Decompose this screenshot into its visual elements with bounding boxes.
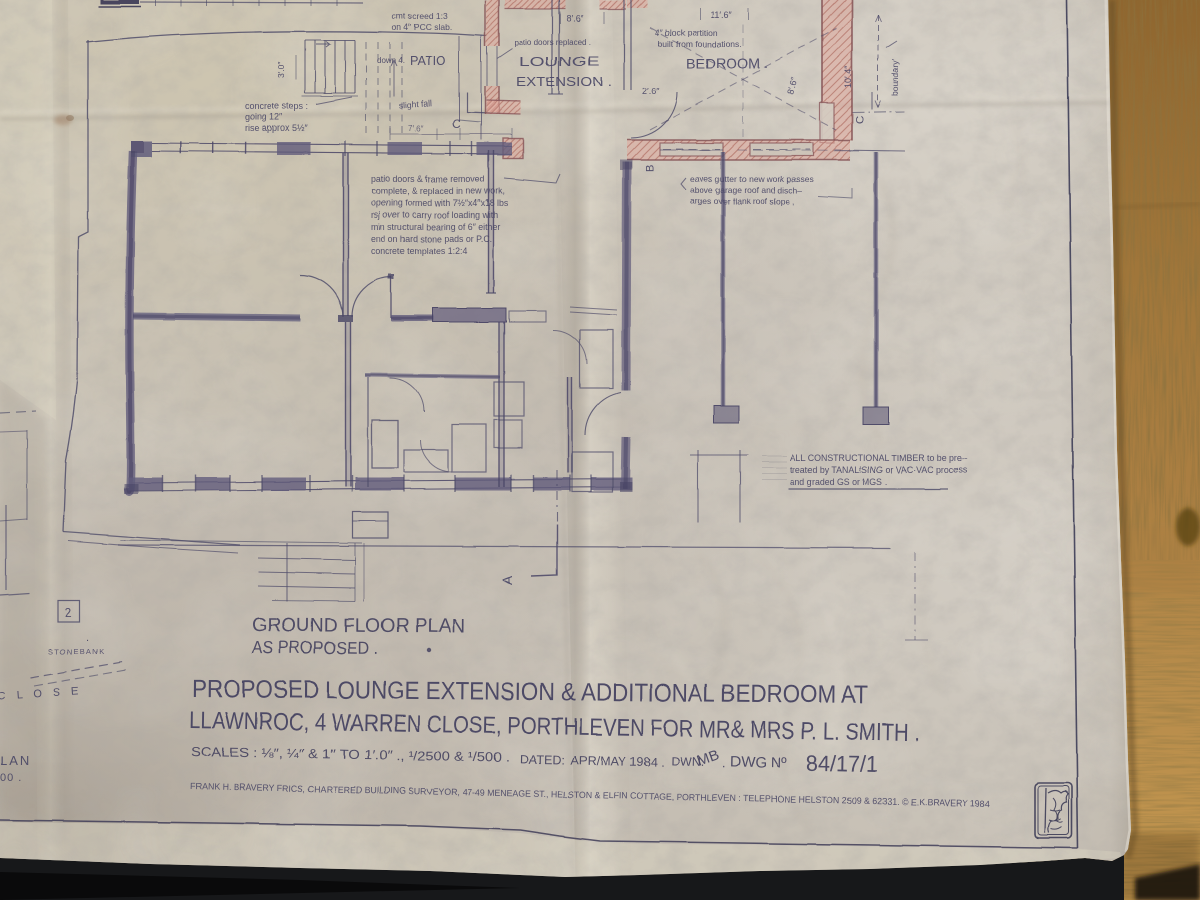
svg-text:00 .: 00 .	[0, 772, 22, 784]
svg-text:7′.6″: 7′.6″	[408, 124, 424, 133]
svg-text:eaves gutter to new work passe: eaves gutter to new work passes	[690, 174, 814, 184]
svg-text:concrete steps :: concrete steps :	[245, 101, 309, 111]
svg-text:STONEBANK: STONEBANK	[48, 647, 105, 656]
svg-text:BEDROOM .: BEDROOM .	[686, 55, 768, 71]
svg-text:concrete templates 1:2:4: concrete templates 1:2:4	[371, 246, 467, 256]
svg-text:C: C	[452, 117, 461, 131]
svg-text:PATIO: PATIO	[410, 54, 446, 68]
svg-text:2: 2	[65, 606, 72, 620]
svg-text:patio doors & frame removed: patio doors & frame removed	[371, 174, 485, 184]
svg-text:rsj over to carry roof loading: rsj over to carry roof loading with	[371, 210, 498, 220]
svg-text:EXTENSION .: EXTENSION .	[516, 74, 612, 89]
svg-text:DATED:: DATED:	[520, 753, 565, 768]
svg-text:B: B	[644, 165, 656, 172]
svg-text:down 4.: down 4.	[377, 56, 405, 65]
svg-text:2′.6″: 2′.6″	[642, 86, 660, 96]
svg-text:opening formed with 7½″x4″x18: opening formed with 7½″x4″x18 lbs	[371, 198, 509, 208]
svg-text:.: .	[86, 632, 89, 644]
svg-text:AS PROPOSED .: AS PROPOSED .	[252, 637, 378, 658]
svg-text:APR/MAY 1984 .: APR/MAY 1984 .	[571, 754, 665, 770]
svg-text:8′.6″: 8′.6″	[566, 14, 584, 24]
svg-text:going 12″: going 12″	[245, 112, 284, 122]
svg-text:A: A	[500, 576, 515, 585]
svg-text:LOUNGE: LOUNGE	[519, 54, 600, 69]
svg-text:on 4″ PCC slab.: on 4″ PCC slab.	[392, 22, 452, 32]
svg-text:complete, & replaced in new wo: complete, & replaced in new work,	[371, 186, 505, 196]
svg-text:DWG Nº: DWG Nº	[730, 753, 788, 771]
svg-text:C: C	[854, 116, 866, 124]
svg-text:PROPOSED LOUNGE EXTENSION & AD: PROPOSED LOUNGE EXTENSION & ADDITIONAL B…	[192, 675, 868, 709]
svg-text:ALL CONSTRUCTIONAL TIMBER to: ALL CONSTRUCTIONAL TIMBER to be pre–	[790, 453, 967, 463]
svg-text:10′.4″: 10′.4″	[843, 65, 853, 88]
svg-text:built from foundations.: built from foundations.	[658, 39, 742, 49]
svg-text:and graded GS or MGS .: and graded GS or MGS .	[790, 477, 887, 487]
svg-text:slight fall: slight fall	[399, 98, 433, 110]
svg-text:84/17/1: 84/17/1	[806, 750, 878, 777]
svg-text:LAN: LAN	[0, 753, 31, 768]
svg-text:end on hard stone pads or P.C.: end on hard stone pads or P.C.	[371, 234, 492, 244]
svg-text:4″ block partition: 4″ block partition	[655, 28, 718, 38]
svg-text:above garage roof and disch–: above garage roof and disch–	[690, 185, 803, 195]
svg-text:3′.0″: 3′.0″	[276, 62, 286, 78]
svg-text:cmt screed 1:3: cmt screed 1:3	[392, 11, 448, 21]
svg-text:treated by TANALISING or VAC·V: treated by TANALISING or VAC·VAC process	[790, 465, 967, 475]
svg-text:min structural bearing of 6″ e: min structural bearing of 6″ either	[371, 222, 500, 232]
svg-text:11′.6″: 11′.6″	[710, 10, 733, 20]
svg-text:GROUND FLOOR PLAN: GROUND FLOOR PLAN	[252, 614, 465, 637]
svg-text:boundary′: boundary′	[890, 59, 900, 96]
svg-text:.: .	[722, 755, 726, 770]
svg-text:arges over flank roof slope ,: arges over flank roof slope ,	[690, 196, 795, 206]
svg-text:rise approx 5½″: rise approx 5½″	[245, 123, 309, 133]
svg-text:patio doors replaced .: patio doors replaced .	[514, 38, 591, 47]
